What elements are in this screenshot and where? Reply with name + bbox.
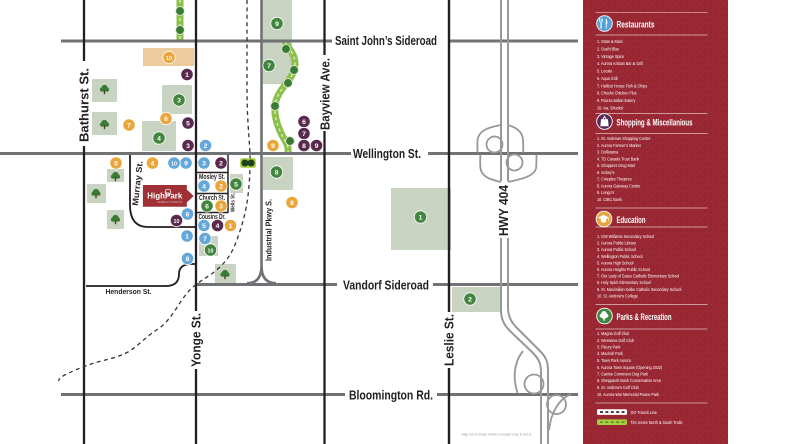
svg-text:7: 7 [127,123,131,130]
svg-text:Education: Education [617,214,646,225]
svg-text:8: 8 [186,256,190,263]
svg-text:6: 6 [205,204,209,211]
svg-text:8. Aurora Gateway Centre: 8. Aurora Gateway Centre [597,183,641,189]
svg-text:Henderson St.: Henderson St. [106,287,152,296]
svg-text:9. Piazza Italian Eatery: 9. Piazza Italian Eatery [597,98,636,104]
svg-text:2. Westview Golf Club: 2. Westview Golf Club [597,337,634,343]
svg-text:6. Aurora Heights Public Schoo: 6. Aurora Heights Public School [597,267,650,273]
svg-text:Wells St.: Wells St. [231,193,237,212]
svg-text:10. St. Andrew’s College: 10. St. Andrew’s College [597,293,638,299]
svg-text:10. Aw, Shucks!: 10. Aw, Shucks! [597,105,623,111]
svg-text:3. Fleury Park: 3. Fleury Park [597,344,621,350]
svg-text:4. Aurora Artisan Bar & Grill: 4. Aurora Artisan Bar & Grill [597,61,643,67]
svg-text:10. CIBC Bank: 10. CIBC Bank [597,197,623,203]
svg-text:1: 1 [185,72,189,79]
svg-text:10. Aurora War Memorial Peace: 10. Aurora War Memorial Peace Park [597,391,660,397]
svg-text:5: 5 [186,121,190,128]
svg-text:8: 8 [302,143,306,150]
svg-text:9. St. Andrew’s Golf Club: 9. St. Andrew’s Golf Club [597,385,639,391]
svg-text:Tim Jones North & South Trails: Tim Jones North & South Trails [631,420,683,426]
svg-text:Restaurants: Restaurants [617,19,655,30]
svg-text:1: 1 [419,215,423,222]
svg-text:Bathurst St.: Bathurst St. [77,68,92,142]
svg-text:4. TD Canada Trust Bank: 4. TD Canada Trust Bank [597,156,640,162]
svg-text:2: 2 [219,161,223,168]
svg-text:8. Sheppards Bush Conservation: 8. Sheppards Bush Conservation Area [597,378,661,384]
svg-text:Bloomington Rd.: Bloomington Rd. [349,387,433,402]
svg-text:2: 2 [468,297,472,304]
svg-text:2: 2 [204,143,208,150]
svg-text:3. Dollarama: 3. Dollarama [597,149,619,155]
svg-text:3: 3 [219,204,223,211]
svg-text:8: 8 [275,170,279,177]
svg-text:6. Aurora Town Square (Opening: 6. Aurora Town Square (Opening 2022) [597,364,663,370]
svg-text:3: 3 [177,98,181,105]
svg-text:2: 2 [219,184,223,191]
svg-text:1. State & Main: 1. State & Main [597,39,623,45]
svg-text:10: 10 [171,162,177,168]
svg-text:1. GW Williams Secondary Schoo: 1. GW Williams Secondary School [597,234,654,240]
svg-text:9: 9 [315,143,319,150]
svg-text:2. Aurora Public Library: 2. Aurora Public Library [597,240,637,246]
svg-text:5: 5 [202,223,206,230]
svg-text:7. Halibut House Fish & Chips: 7. Halibut House Fish & Chips [597,83,647,89]
svg-text:9: 9 [275,21,279,28]
svg-text:6: 6 [164,116,168,123]
svg-text:6: 6 [302,119,306,126]
svg-text:GO Transit Line: GO Transit Line [631,410,658,416]
svg-text:6. Sobey’s: 6. Sobey’s [597,169,614,175]
svg-text:3. Vintage Spice: 3. Vintage Spice [597,53,625,59]
svg-text:4: 4 [151,161,155,168]
svg-text:4: 4 [202,184,206,191]
svg-text:4. Wellington Public School: 4. Wellington Public School [597,253,642,259]
svg-text:7: 7 [203,236,207,243]
svg-text:Wellington St.: Wellington St. [353,146,421,161]
svg-text:5. Town Park Aurora: 5. Town Park Aurora [597,358,631,364]
svg-text:7. Canine Commons Dog Park: 7. Canine Commons Dog Park [597,371,649,377]
svg-text:10: 10 [166,56,172,62]
svg-text:4: 4 [157,136,161,143]
svg-text:7. Our Lady of Grace Catholic: 7. Our Lady of Grace Catholic Elementary… [597,273,679,279]
svg-text:8. Chucks Chicken Plus: 8. Chucks Chicken Plus [597,90,637,96]
svg-text:10: 10 [208,249,214,255]
svg-text:5. Aurora High School: 5. Aurora High School [597,260,634,266]
svg-text:Industrial Pkwy S.: Industrial Pkwy S. [265,199,274,261]
svg-text:Map not to scale. Artist’s con: Map not to scale. Artist’s concept only.… [462,433,533,437]
svg-text:8. Holy Spirit Elementary Scho: 8. Holy Spirit Elementary School [597,280,651,286]
svg-text:Saint John’s Sideroad: Saint John’s Sideroad [335,33,437,48]
svg-text:Leslie St.: Leslie St. [442,314,457,366]
svg-text:Shopping & Miscellanious: Shopping & Miscellanious [617,116,693,127]
svg-text:3: 3 [186,143,190,150]
svg-text:3. Aurora Public School: 3. Aurora Public School [597,247,636,253]
svg-text:2. Aurora Farmer’s Market: 2. Aurora Farmer’s Market [597,142,641,148]
svg-text:6: 6 [186,212,190,219]
svg-text:9. Longo’s: 9. Longo’s [597,190,614,196]
svg-text:Yonge St.: Yonge St. [189,313,204,367]
svg-text:6. Aqua Grill: 6. Aqua Grill [597,76,618,82]
svg-text:5: 5 [114,161,118,168]
svg-text:4: 4 [216,223,220,230]
svg-text:3: 3 [202,161,206,168]
svg-text:Bayview Ave.: Bayview Ave. [318,58,333,130]
svg-text:HWY 404: HWY 404 [496,184,511,236]
svg-text:Vandorf Sideroad: Vandorf Sideroad [343,277,429,292]
svg-text:1: 1 [229,223,233,230]
svg-text:9: 9 [184,161,188,168]
svg-text:5. Shoppers Drug Mart: 5. Shoppers Drug Mart [597,163,636,169]
svg-text:1: 1 [185,234,189,241]
svg-text:URBAN TOWNS: URBAN TOWNS [157,200,182,204]
svg-text:7: 7 [267,63,271,70]
svg-text:7. Cineplex Theatres: 7. Cineplex Theatres [597,176,632,182]
svg-text:9: 9 [271,143,275,150]
svg-text:Parks & Recreation: Parks & Recreation [617,311,672,322]
svg-text:8: 8 [290,200,294,207]
svg-text:4. Machell Park: 4. Machell Park [597,351,624,357]
svg-text:5. Locale: 5. Locale [597,68,613,74]
svg-text:1. Magna Golf Club: 1. Magna Golf Club [597,331,630,337]
svg-text:2. Sushi Blue: 2. Sushi Blue [597,46,620,52]
svg-text:9. St. Maximilian Kolbe Cathol: 9. St. Maximilian Kolbe Catholic Seconda… [597,286,681,292]
svg-text:5: 5 [234,182,238,189]
svg-text:1. St. Andrews Shopping Centre: 1. St. Andrews Shopping Centre [597,136,651,142]
svg-text:10: 10 [174,219,180,225]
svg-text:7: 7 [302,131,306,138]
